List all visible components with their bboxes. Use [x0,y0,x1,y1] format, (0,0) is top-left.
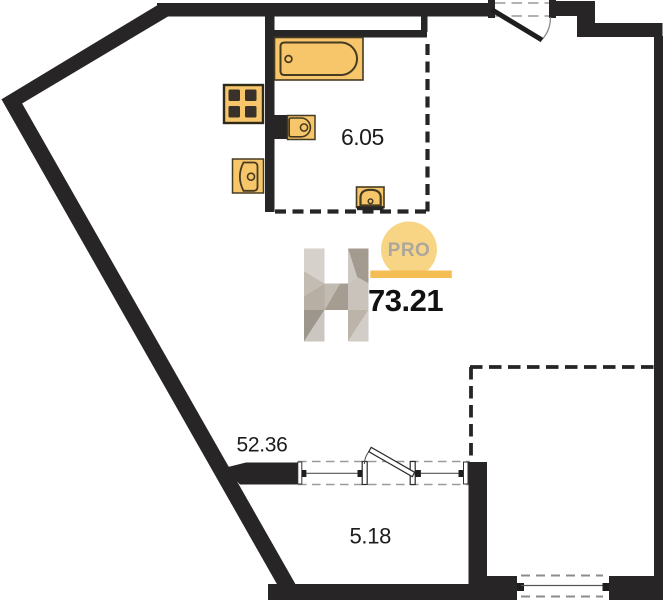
svg-text:6.05: 6.05 [341,124,384,150]
svg-text:52.36: 52.36 [237,434,288,457]
svg-text:PRO: PRO [388,240,431,261]
svg-text:5.18: 5.18 [350,524,392,549]
svg-text:73.21: 73.21 [368,283,443,318]
